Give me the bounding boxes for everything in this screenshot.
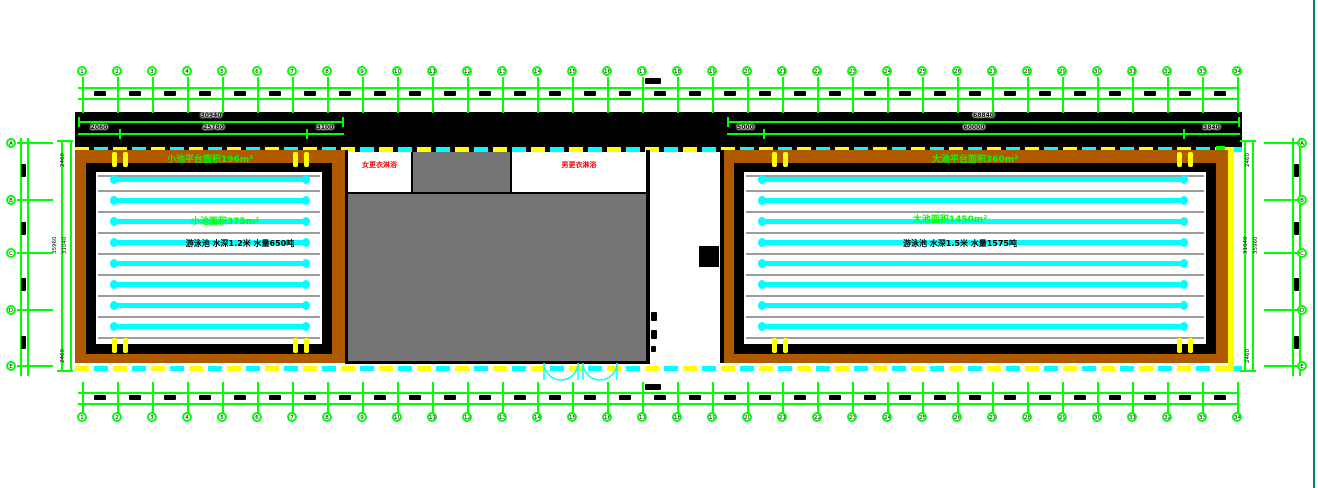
dimension-text-blob xyxy=(724,91,736,96)
lane-rope xyxy=(98,295,320,297)
grid-axis-bubble: 17 xyxy=(637,66,647,76)
grid-line xyxy=(957,382,959,414)
grid-line xyxy=(1202,382,1204,414)
dimension-text-blob xyxy=(1004,395,1016,400)
floor-plan-canvas: 30940 2060 25780 3100 68840 5000 60000 3… xyxy=(0,0,1318,488)
grid-axis-bubble: 3 xyxy=(147,66,157,76)
boundary-dashed-line-bottom xyxy=(75,366,1242,371)
pool-ladder-icon xyxy=(783,152,788,167)
grid-axis-bubble: 26 xyxy=(952,66,962,76)
pool-ladder-icon xyxy=(772,152,777,167)
lane-end-float xyxy=(110,238,118,247)
door-swing-icon xyxy=(582,363,618,382)
dimension-text-blob xyxy=(339,395,351,400)
lane-end-float xyxy=(758,196,766,205)
pool-ladder-icon xyxy=(304,338,309,353)
dimension-line xyxy=(78,133,344,135)
dimension-text-blob xyxy=(645,384,661,390)
dimension-tick xyxy=(1240,140,1256,142)
pool-ladder-icon xyxy=(1177,338,1182,353)
swim-lane xyxy=(764,261,1184,266)
lane-end-float xyxy=(110,196,118,205)
grid-axis-bubble: 5 xyxy=(217,66,227,76)
lane-rope xyxy=(746,295,1204,297)
lane-end-float xyxy=(110,259,118,268)
grid-dim-line xyxy=(78,87,1238,89)
grid-line xyxy=(607,382,609,414)
grid-line xyxy=(27,138,29,376)
grid-axis-bubble: 13 xyxy=(497,66,507,76)
dimension-text: 2460 xyxy=(60,146,69,174)
grid-axis-bubble: 12 xyxy=(462,66,472,76)
grid-line xyxy=(817,382,819,414)
grid-line xyxy=(222,382,224,414)
dimension-text-blob xyxy=(1179,91,1191,96)
dimension-text: 68840 xyxy=(727,112,1240,119)
dimension-text-blob xyxy=(234,395,246,400)
building-tower xyxy=(413,152,510,192)
dimension-text: 31040 xyxy=(62,225,71,265)
grid-line xyxy=(152,77,154,113)
right-pool-spec-label: 游泳池 水深1.5米 水量1575吨 xyxy=(840,238,1080,249)
pool-ladder-icon xyxy=(123,338,128,353)
lane-rope xyxy=(98,316,320,318)
grid-line xyxy=(397,382,399,414)
dimension-tick xyxy=(57,370,73,372)
dimension-text-blob xyxy=(514,91,526,96)
dimension-text-blob xyxy=(794,91,806,96)
pool-ladder-icon xyxy=(293,152,298,167)
grid-axis-bubble: 30 xyxy=(1092,66,1102,76)
grid-line xyxy=(922,382,924,414)
dimension-line xyxy=(727,133,1240,135)
lane-rope xyxy=(746,232,1204,234)
grid-line xyxy=(502,77,504,113)
pool-ladder-icon xyxy=(772,338,777,353)
grid-line xyxy=(117,382,119,414)
grid-line xyxy=(817,77,819,113)
grid-axis-bubble: 2 xyxy=(112,66,122,76)
grid-axis-bubble: 27 xyxy=(987,66,997,76)
grid-line xyxy=(502,382,504,414)
dimension-text-blob xyxy=(304,395,316,400)
changing-room-right xyxy=(512,152,646,192)
grid-line xyxy=(292,77,294,113)
grid-axis-bubble: A xyxy=(6,138,16,148)
grid-line xyxy=(82,382,84,414)
dimension-text: 30940 xyxy=(78,112,344,119)
dimension-text-blob xyxy=(409,91,421,96)
grid-axis-bubble: 9 xyxy=(357,66,367,76)
swim-lane xyxy=(116,198,306,203)
grid-line xyxy=(1237,382,1239,414)
lane-rope xyxy=(98,337,320,339)
grid-line xyxy=(887,77,889,113)
grid-line xyxy=(1062,77,1064,113)
dimension-text-blob xyxy=(514,395,526,400)
grid-line xyxy=(257,382,259,414)
grid-line xyxy=(572,382,574,414)
grid-line xyxy=(1027,77,1029,113)
dimension-text-blob xyxy=(444,91,456,96)
grid-axis-bubble: 20 xyxy=(742,66,752,76)
changing-room-left-label: 女更衣淋浴 xyxy=(348,160,411,170)
dimension-text-blob xyxy=(94,91,106,96)
dimension-text: 2460 xyxy=(60,342,69,370)
swim-lane xyxy=(764,198,1184,203)
grid-line xyxy=(887,382,889,414)
grid-axis-bubble: 28 xyxy=(1022,66,1032,76)
dimension-text-blob xyxy=(899,91,911,96)
grid-axis-bubble: 14 xyxy=(532,66,542,76)
grid-line xyxy=(1264,309,1300,311)
grid-line xyxy=(432,77,434,113)
grid-axis-bubble: 33 xyxy=(1197,66,1207,76)
lane-rope xyxy=(746,253,1204,255)
grid-line xyxy=(432,382,434,414)
lane-end-float xyxy=(1180,301,1188,310)
dimension-text-blob xyxy=(1004,91,1016,96)
lane-end-float xyxy=(758,259,766,268)
pool-ladder-icon xyxy=(112,152,117,167)
dimension-text: 2060 xyxy=(78,124,120,131)
lane-end-float xyxy=(110,217,118,226)
grid-axis-bubble: 7 xyxy=(287,66,297,76)
lane-end-float xyxy=(758,217,766,226)
grid-line xyxy=(152,382,154,414)
dimension-text-blob xyxy=(549,395,561,400)
grid-line xyxy=(467,382,469,414)
dimension-text-blob xyxy=(619,395,631,400)
dimension-text-blob xyxy=(1179,395,1191,400)
grid-axis-bubble: 24 xyxy=(882,66,892,76)
grid-axis-bubble: 8 xyxy=(322,66,332,76)
dimension-line xyxy=(727,121,1240,123)
dimension-text-blob xyxy=(129,395,141,400)
grid-axis-bubble: 21 xyxy=(777,66,787,76)
grid-axis-bubble: 32 xyxy=(1162,66,1172,76)
swim-lane xyxy=(764,303,1184,308)
wall-fitting xyxy=(651,346,656,352)
grid-line xyxy=(747,382,749,414)
dimension-text-blob xyxy=(724,395,736,400)
grid-line xyxy=(467,77,469,113)
grid-line xyxy=(642,77,644,113)
dimension-text-blob xyxy=(934,395,946,400)
grid-line xyxy=(17,309,53,311)
dimension-text-blob xyxy=(94,395,106,400)
changing-room-left xyxy=(348,152,411,192)
grid-axis-bubble: 25 xyxy=(917,66,927,76)
grid-line xyxy=(187,77,189,113)
lane-end-float xyxy=(758,175,766,184)
grid-line xyxy=(712,77,714,113)
dimension-text-blob xyxy=(584,395,596,400)
right-pool-area-label: 大池面积1450m² xyxy=(850,212,1050,225)
grid-axis-bubble: 1 xyxy=(77,66,87,76)
dimension-text-blob xyxy=(1074,91,1086,96)
grid-line xyxy=(17,252,53,254)
grid-line xyxy=(17,365,53,367)
grid-line xyxy=(82,77,84,113)
wall-fitting xyxy=(651,330,657,339)
lane-end-float xyxy=(758,301,766,310)
dimension-text: 25780 xyxy=(120,124,307,131)
grid-axis-bubble: 10 xyxy=(392,66,402,76)
grid-axis-bubble: 18 xyxy=(672,66,682,76)
dimension-text: 35960 xyxy=(1253,225,1262,265)
dimension-text-blob xyxy=(234,91,246,96)
left-pool-spec-label: 游泳池 水深1.2米 水量650吨 xyxy=(150,238,330,249)
pool-ladder-icon xyxy=(1177,152,1182,167)
dimension-text-blob xyxy=(1109,395,1121,400)
equipment-block xyxy=(699,246,719,267)
lane-end-float xyxy=(110,301,118,310)
lane-rope xyxy=(98,253,320,255)
dimension-text-blob xyxy=(829,91,841,96)
dimension-text-blob xyxy=(199,91,211,96)
grid-line xyxy=(187,382,189,414)
dimension-text-blob xyxy=(1214,395,1226,400)
lane-rope xyxy=(98,232,320,234)
dimension-text: 35960 xyxy=(52,225,61,265)
dimension-text-blob xyxy=(584,91,596,96)
changing-room-right-label: 男更衣淋浴 xyxy=(512,160,646,170)
dimension-line xyxy=(78,121,344,123)
grid-line xyxy=(1202,77,1204,113)
dimension-text-blob xyxy=(645,78,661,84)
grid-line xyxy=(17,142,53,144)
grid-axis-bubble: E xyxy=(6,361,16,371)
lane-rope xyxy=(746,316,1204,318)
lane-end-float xyxy=(1180,322,1188,331)
grid-line xyxy=(537,382,539,414)
lane-rope xyxy=(746,337,1204,339)
dimension-text: 60000 xyxy=(764,124,1184,131)
dimension-text: 2460 xyxy=(1245,342,1254,370)
grid-axis-bubble: C xyxy=(6,248,16,258)
grid-line xyxy=(1167,382,1169,414)
dimension-text-blob xyxy=(759,395,771,400)
grid-line xyxy=(992,77,994,113)
grid-axis-bubble: 19 xyxy=(707,66,717,76)
grid-line xyxy=(222,77,224,113)
dimension-tick xyxy=(57,140,73,142)
dimension-text-blob xyxy=(1214,91,1226,96)
dimension-text-blob xyxy=(339,91,351,96)
grid-line xyxy=(922,77,924,113)
grid-line xyxy=(852,382,854,414)
left-pool-area-label: 小池面积375m² xyxy=(145,214,305,227)
lane-end-float xyxy=(758,280,766,289)
dimension-text-blob xyxy=(1294,222,1299,235)
viewport-edge-line xyxy=(1313,0,1315,488)
dimension-text-blob xyxy=(269,395,281,400)
lane-end-float xyxy=(110,322,118,331)
lane-end-float xyxy=(1180,175,1188,184)
grid-line xyxy=(992,382,994,414)
grid-line xyxy=(1097,382,1099,414)
grid-line xyxy=(782,77,784,113)
right-pool-deck-edge xyxy=(720,150,724,363)
grid-line xyxy=(1167,77,1169,113)
grid-line xyxy=(257,77,259,113)
dimension-text-blob xyxy=(1144,91,1156,96)
swim-lane xyxy=(764,324,1184,329)
dimension-text-blob xyxy=(479,395,491,400)
lane-end-float xyxy=(1180,259,1188,268)
dimension-text: 2460 xyxy=(1245,146,1254,174)
grid-axis-bubble: 16 xyxy=(602,66,612,76)
grid-dim-line xyxy=(78,98,1238,100)
grid-axis-bubble: 31 xyxy=(1127,66,1137,76)
grid-line xyxy=(292,382,294,414)
grid-axis-bubble: B xyxy=(6,195,16,205)
grid-line xyxy=(362,77,364,113)
grid-line xyxy=(1132,77,1134,113)
boundary-bar-right xyxy=(1228,147,1234,371)
lane-rope xyxy=(98,190,320,192)
dimension-text-blob xyxy=(164,395,176,400)
grid-dim-line xyxy=(78,403,1238,405)
dimension-text-blob xyxy=(479,91,491,96)
grid-line xyxy=(957,77,959,113)
dimension-text-blob xyxy=(864,395,876,400)
dimension-text: 3100 xyxy=(307,124,343,131)
grid-axis-bubble: 6 xyxy=(252,66,262,76)
lane-rope xyxy=(98,211,320,213)
dimension-text-blob xyxy=(129,91,141,96)
grid-line xyxy=(17,199,53,201)
grid-line xyxy=(1264,199,1300,201)
grid-axis-bubble: 23 xyxy=(847,66,857,76)
dimension-text-blob xyxy=(21,164,26,177)
lane-end-float xyxy=(758,238,766,247)
lane-end-float xyxy=(302,280,310,289)
swim-lane xyxy=(116,177,306,182)
grid-dim-line xyxy=(78,392,1238,394)
lane-end-float xyxy=(302,301,310,310)
dimension-text-blob xyxy=(1109,91,1121,96)
swim-lane xyxy=(116,261,306,266)
dimension-text-blob xyxy=(654,91,666,96)
grid-line xyxy=(1264,365,1300,367)
dimension-text-blob xyxy=(829,395,841,400)
lane-end-float xyxy=(110,175,118,184)
lane-end-float xyxy=(302,322,310,331)
dimension-text-blob xyxy=(1294,336,1299,349)
pool-ladder-icon xyxy=(112,338,117,353)
dimension-text-blob xyxy=(654,395,666,400)
building-right-wall xyxy=(646,150,650,363)
dimension-tick xyxy=(1240,370,1256,372)
dimension-text-blob xyxy=(164,91,176,96)
lane-rope xyxy=(746,274,1204,276)
lane-end-float xyxy=(302,175,310,184)
grid-line xyxy=(327,77,329,113)
swim-lane xyxy=(764,177,1184,182)
dimension-text-blob xyxy=(1294,164,1299,177)
lane-end-float xyxy=(302,196,310,205)
grid-line xyxy=(677,77,679,113)
grid-axis-bubble: D xyxy=(6,305,16,315)
pool-ladder-icon xyxy=(123,152,128,167)
grid-line xyxy=(677,382,679,414)
grid-line xyxy=(852,77,854,113)
dimension-text: 31040 xyxy=(1243,225,1252,265)
pool-ladder-icon xyxy=(1188,152,1193,167)
grid-line xyxy=(1062,382,1064,414)
lane-end-float xyxy=(758,322,766,331)
dimension-text-blob xyxy=(374,395,386,400)
building-main-block xyxy=(348,194,646,361)
dimension-text-blob xyxy=(549,91,561,96)
grid-line xyxy=(327,382,329,414)
dimension-text-blob xyxy=(199,395,211,400)
grid-line xyxy=(1264,142,1300,144)
grid-line xyxy=(397,77,399,113)
dimension-text-blob xyxy=(689,395,701,400)
dimension-text: 3840 xyxy=(1184,124,1239,131)
dimension-text-blob xyxy=(21,278,26,291)
grid-axis-bubble: 4 xyxy=(182,66,192,76)
grid-line xyxy=(642,382,644,414)
pool-ladder-icon xyxy=(293,338,298,353)
grid-line xyxy=(572,77,574,113)
dimension-text-blob xyxy=(969,91,981,96)
lane-end-float xyxy=(1180,217,1188,226)
grid-line xyxy=(1237,77,1239,113)
grid-line xyxy=(1132,382,1134,414)
grid-axis-bubble: 15 xyxy=(567,66,577,76)
dimension-text-blob xyxy=(619,91,631,96)
dimension-text-blob xyxy=(934,91,946,96)
grid-line xyxy=(117,77,119,113)
swim-lane xyxy=(116,303,306,308)
dimension-text-blob xyxy=(1294,278,1299,291)
grid-line xyxy=(1027,382,1029,414)
dimension-text-blob xyxy=(864,91,876,96)
swim-lane xyxy=(764,282,1184,287)
dimension-text-blob xyxy=(21,222,26,235)
dimension-text-blob xyxy=(304,91,316,96)
pool-ladder-icon xyxy=(783,338,788,353)
dimension-text-blob xyxy=(1039,395,1051,400)
grid-axis-bubble: 22 xyxy=(812,66,822,76)
grid-line xyxy=(1097,77,1099,113)
grid-line xyxy=(782,382,784,414)
dimension-text-blob xyxy=(409,395,421,400)
lane-rope xyxy=(98,274,320,276)
wall-fitting xyxy=(651,312,657,321)
swim-lane xyxy=(116,324,306,329)
dimension-text-blob xyxy=(1144,395,1156,400)
grid-axis-bubble: 34 xyxy=(1232,66,1242,76)
dimension-text-blob xyxy=(1039,91,1051,96)
pool-ladder-icon xyxy=(1188,338,1193,353)
grid-line xyxy=(362,382,364,414)
grid-line xyxy=(747,77,749,113)
dimension-text-blob xyxy=(899,395,911,400)
dimension-text-blob xyxy=(794,395,806,400)
grid-line xyxy=(607,77,609,113)
dimension-text: 5000 xyxy=(727,124,764,131)
dimension-text-blob xyxy=(759,91,771,96)
dimension-text-blob xyxy=(374,91,386,96)
lane-end-float xyxy=(1180,280,1188,289)
dimension-text-blob xyxy=(969,395,981,400)
grid-line xyxy=(712,382,714,414)
